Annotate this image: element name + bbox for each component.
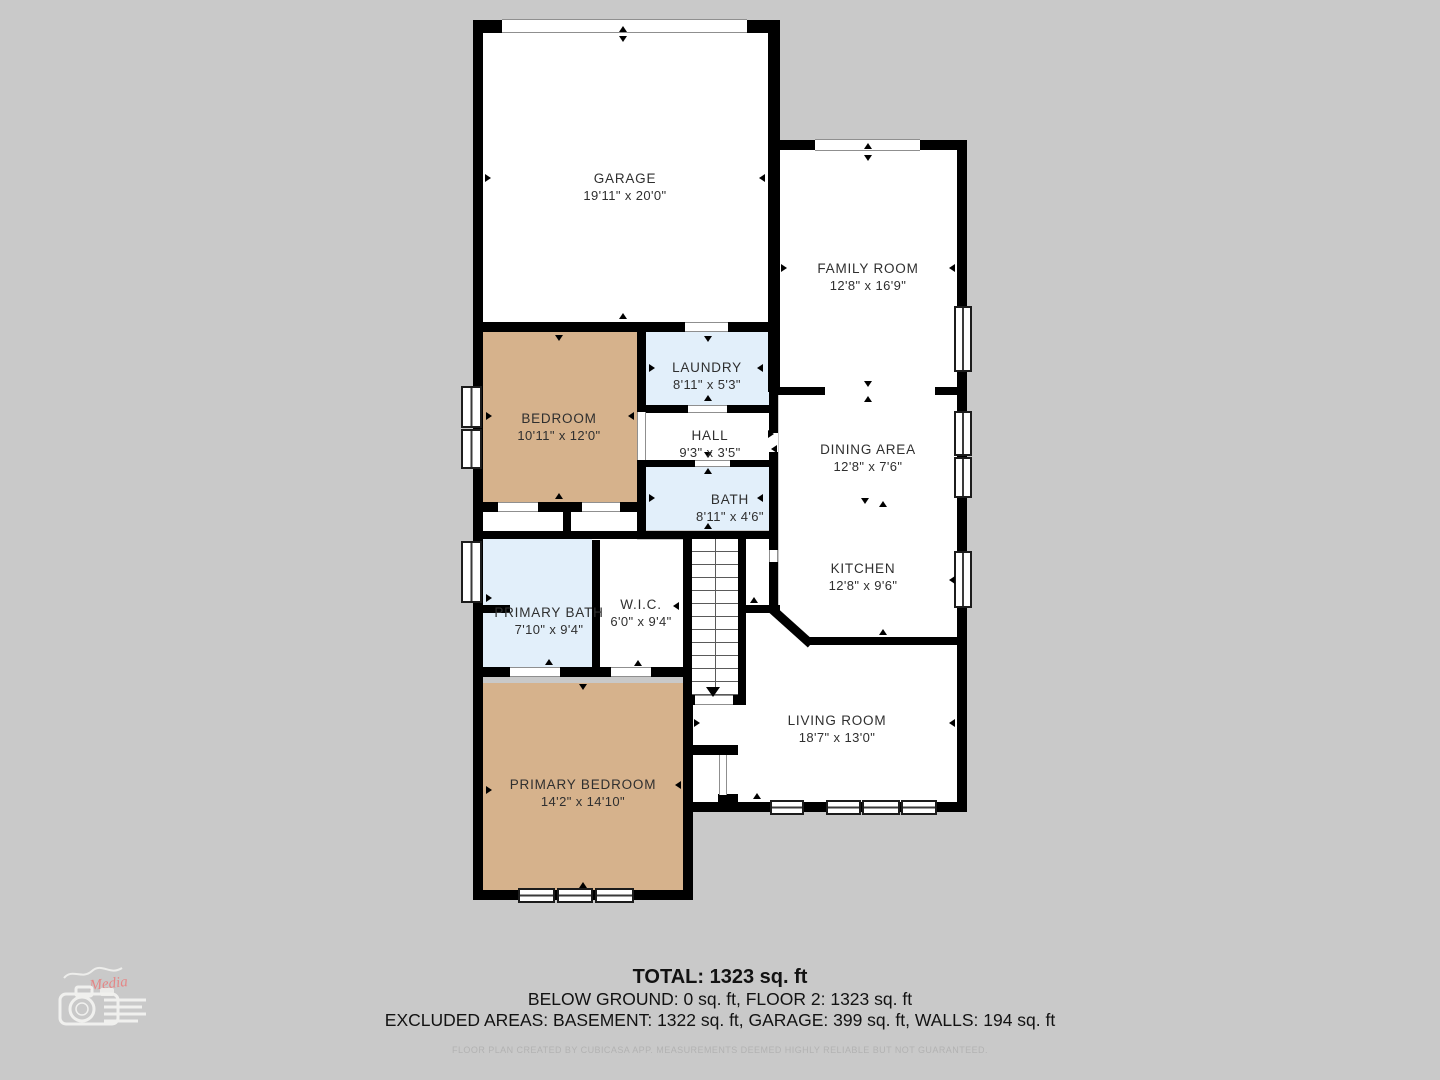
window — [954, 306, 972, 372]
window — [595, 888, 634, 903]
marker-icon — [753, 793, 761, 799]
wall — [563, 512, 571, 539]
marker-icon — [879, 629, 887, 635]
door-opening — [510, 667, 560, 677]
door-opening — [688, 405, 727, 413]
wall — [560, 667, 611, 677]
marker-icon — [864, 143, 872, 149]
room-label-bath: BATH 8'11" x 4'6" — [696, 491, 764, 525]
room-label-primary-bedroom: PRIMARY BEDROOM 14'2" x 14'10" — [510, 776, 657, 810]
marker-icon — [781, 264, 787, 272]
room-dimensions: 7'10" x 9'4" — [494, 621, 603, 638]
marker-icon — [649, 494, 655, 502]
wall — [637, 323, 646, 412]
door-opening — [498, 502, 538, 512]
window — [862, 800, 900, 815]
marker-icon — [619, 26, 627, 32]
room-dimensions: 14'2" x 14'10" — [510, 793, 657, 810]
room-dimensions: 18'7" x 13'0" — [788, 729, 887, 746]
window — [518, 888, 555, 903]
wall — [769, 140, 815, 150]
marker-icon — [771, 445, 777, 453]
wall — [473, 20, 502, 33]
wall — [733, 695, 746, 705]
marker-icon — [486, 412, 492, 420]
marker-icon — [619, 313, 627, 319]
door-opening — [769, 550, 778, 562]
room-label-laundry: LAUNDRY 8'11" x 5'3" — [672, 359, 742, 393]
room-label-wic: W.I.C. 6'0" x 9'4" — [610, 596, 671, 630]
room-label-garage: GARAGE 19'11" x 20'0" — [583, 170, 666, 204]
marker-icon — [673, 602, 679, 610]
room-name: FAMILY ROOM — [817, 260, 918, 278]
marker-icon — [861, 498, 869, 504]
marker-icon — [864, 381, 872, 387]
window — [461, 386, 482, 428]
window — [826, 800, 861, 815]
wall — [935, 387, 957, 395]
total-area-text: TOTAL: 1323 sq. ft — [0, 966, 1440, 989]
marker-icon — [619, 36, 627, 42]
camera-icon: Media — [50, 960, 165, 1032]
marker-icon — [949, 719, 955, 727]
room-name: BATH — [696, 491, 764, 509]
marker-icon — [949, 264, 955, 272]
room-dimensions: 12'8" x 16'9" — [817, 277, 918, 294]
marker-icon — [485, 174, 491, 182]
room-name: DINING AREA — [820, 441, 916, 459]
room-dimensions: 8'11" x 4'6" — [696, 508, 764, 525]
window — [557, 888, 593, 903]
marker-icon — [768, 430, 774, 438]
room-name: LAUNDRY — [672, 359, 742, 377]
stairs-down-arrow-icon — [706, 687, 720, 697]
wall — [808, 637, 957, 645]
wall — [683, 745, 738, 755]
marker-icon — [649, 364, 655, 372]
wall — [473, 531, 778, 539]
staircase — [692, 539, 738, 695]
room-dimensions: 9'3" x 3'5" — [679, 444, 740, 461]
marker-icon — [579, 684, 587, 690]
room-dimensions: 19'11" x 20'0" — [583, 187, 666, 204]
wall — [769, 562, 778, 605]
room-name: HALL — [679, 427, 740, 445]
room-dimensions: 12'8" x 7'6" — [820, 458, 916, 475]
marker-icon — [704, 336, 712, 342]
door-opening — [685, 322, 728, 332]
window — [901, 800, 937, 815]
marker-icon — [704, 468, 712, 474]
room-label-family-room: FAMILY ROOM 12'8" x 16'9" — [817, 260, 918, 294]
marker-icon — [879, 501, 887, 507]
marker-icon — [486, 786, 492, 794]
marker-icon — [750, 597, 758, 603]
marker-icon — [694, 719, 700, 727]
wall — [683, 695, 695, 705]
room-name: GARAGE — [583, 170, 666, 188]
marker-icon — [555, 335, 563, 341]
room-label-hall: HALL 9'3" x 3'5" — [679, 427, 740, 461]
room-dimensions: 8'11" x 5'3" — [672, 376, 742, 393]
floor-breakdown-text: BELOW GROUND: 0 sq. ft, FLOOR 2: 1323 sq… — [0, 989, 1440, 1010]
window — [461, 541, 482, 603]
room-name: LIVING ROOM — [788, 712, 887, 730]
wall — [778, 387, 825, 395]
marker-icon — [864, 155, 872, 161]
marker-icon — [555, 493, 563, 499]
excluded-areas-text: EXCLUDED AREAS: BASEMENT: 1322 sq. ft, G… — [0, 1010, 1440, 1031]
room-dimensions: 6'0" x 9'4" — [610, 613, 671, 630]
marker-icon — [675, 781, 681, 789]
door-opening — [637, 412, 646, 460]
marker-icon — [486, 594, 492, 602]
room-label-dining-area: DINING AREA 12'8" x 7'6" — [820, 441, 916, 475]
window — [954, 411, 972, 456]
wall — [728, 322, 780, 332]
wall — [473, 322, 685, 332]
room-label-kitchen: KITCHEN 12'8" x 9'6" — [829, 560, 898, 594]
room-name: PRIMARY BATH — [494, 604, 603, 622]
stair-landing — [746, 539, 769, 645]
wall — [727, 405, 778, 413]
marker-icon — [545, 659, 553, 665]
floor-plan-canvas: GARAGE 19'11" x 20'0" FAMILY ROOM 12'8" … — [0, 0, 1440, 1080]
wall — [718, 794, 738, 804]
room-label-bedroom: BEDROOM 10'11" x 12'0" — [517, 410, 600, 444]
wall — [538, 502, 582, 512]
marker-icon — [628, 412, 634, 420]
wall — [768, 20, 780, 392]
window — [954, 551, 972, 608]
wall — [473, 502, 498, 512]
wall — [738, 531, 746, 705]
door-opening — [611, 667, 651, 677]
wall — [637, 460, 646, 531]
closet-door-opening — [719, 755, 727, 795]
room-name: W.I.C. — [610, 596, 671, 614]
marker-icon — [634, 660, 642, 666]
room-label-primary-bath: PRIMARY BATH 7'10" x 9'4" — [494, 604, 603, 638]
staircase-stringer — [715, 539, 716, 689]
door-opening — [582, 502, 620, 512]
room-label-living-room: LIVING ROOM 18'7" x 13'0" — [788, 712, 887, 746]
wall — [473, 667, 510, 677]
window — [461, 429, 482, 469]
room-dimensions: 10'11" x 12'0" — [517, 427, 600, 444]
marker-icon — [759, 174, 765, 182]
room-dimensions: 12'8" x 9'6" — [829, 577, 898, 594]
window — [770, 800, 804, 815]
media-watermark-logo: Media — [50, 960, 165, 1032]
marker-icon — [864, 396, 872, 402]
room-name: BEDROOM — [517, 410, 600, 428]
room-name: KITCHEN — [829, 560, 898, 578]
wall — [683, 531, 692, 705]
disclaimer-text: FLOOR PLAN CREATED BY CUBICASA APP. MEAS… — [0, 1045, 1440, 1055]
wall — [683, 677, 693, 900]
marker-icon — [579, 882, 587, 888]
window — [954, 457, 972, 498]
marker-icon — [757, 364, 763, 372]
marker-icon — [949, 576, 955, 584]
room-name: PRIMARY BEDROOM — [510, 776, 657, 794]
marker-icon — [704, 395, 712, 401]
